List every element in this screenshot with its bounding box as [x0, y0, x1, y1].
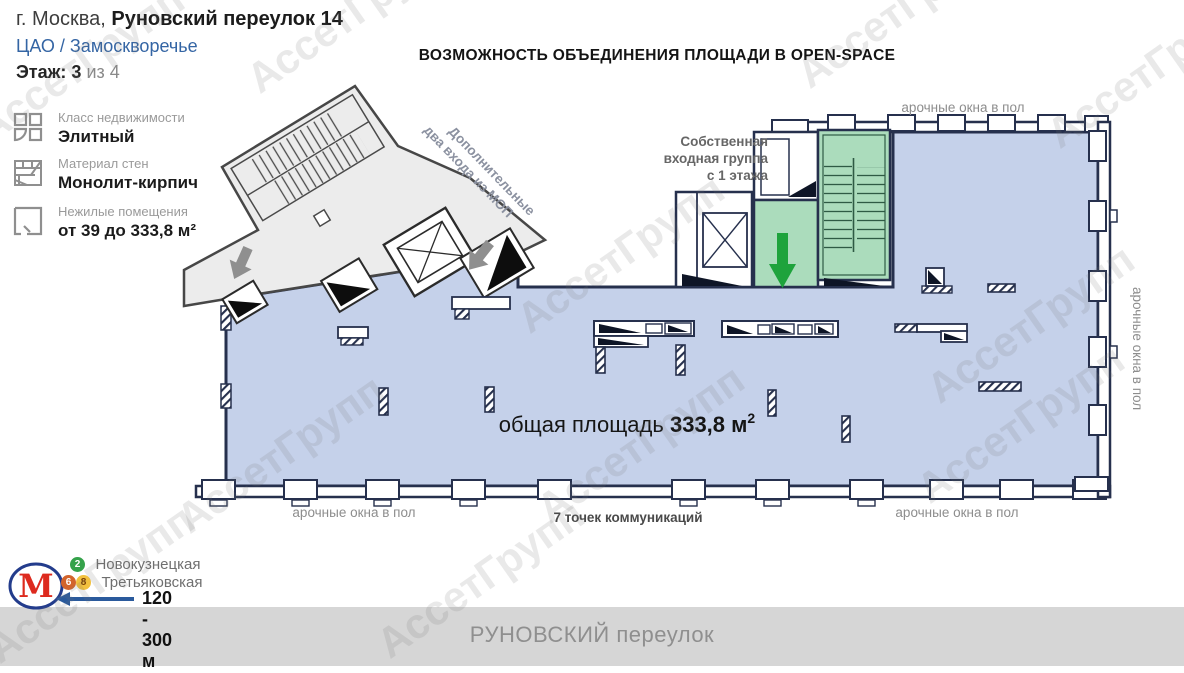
floor-current: 3 [71, 62, 81, 82]
city-label: г. Москва, [16, 8, 106, 30]
property-label: Материал стен [58, 156, 220, 171]
distance-arrow-icon [56, 592, 136, 611]
address-label: Руновский переулок 14 [111, 8, 342, 30]
address-line: г. Москва, Руновский переулок 14 [16, 8, 343, 31]
metro-station: 2 Новокузнецкая [70, 556, 200, 574]
property-label: Нежилые помещения [58, 204, 220, 219]
floor-total: из 4 [86, 62, 119, 82]
floor-line: Этаж: 3 из 4 [16, 62, 343, 83]
green-staircase [818, 130, 890, 286]
property-value: Монолит-кирпич [58, 173, 220, 193]
metro-line-badge: 8 [76, 575, 91, 590]
windows-label-top: арочные окна в пол [901, 100, 1024, 115]
property-walls: Материал стен Монолит-кирпич [0, 156, 220, 193]
metro-line-badge: 2 [70, 557, 85, 572]
svg-text:с 1 этажа: с 1 этажа [707, 168, 769, 183]
metro-station: 68 Третьяковская [61, 574, 203, 592]
metro-line-badge: 6 [61, 575, 76, 590]
plan-headline: ВОЗМОЖНОСТЬ ОБЪЕДИНЕНИЯ ПЛОЩАДИ В OPEN-S… [419, 47, 895, 64]
property-label: Класс недвижимости [58, 110, 220, 125]
windows-label-right: арочные окна в пол [1130, 287, 1145, 410]
communications-label: 7 точек коммуникаций [553, 510, 702, 525]
svg-text:входная группа: входная группа [664, 151, 769, 166]
windows-label-bottom-right: арочные окна в пол [895, 505, 1018, 520]
property-value: от 39 до 333,8 м² [58, 221, 220, 241]
property-class: Класс недвижимости Элитный [0, 110, 220, 147]
metro-station-name: Новокузнецкая [95, 556, 200, 573]
svg-text:арочные окна в пол: арочные окна в пол [1130, 287, 1145, 410]
property-class-icon [13, 112, 43, 147]
district-label: ЦАО / Замоскворечье [16, 36, 343, 57]
entrance-group-label: Собственная входная группа с 1 этажа [664, 134, 769, 183]
windows-label-bottom-left: арочные окна в пол [292, 505, 415, 520]
street-bar: РУНОВСКИЙ переулок [0, 607, 1184, 666]
premises-area-icon [13, 206, 43, 241]
total-area-label: общая площадь 333,8 м2 [499, 410, 756, 437]
property-value: Элитный [58, 127, 220, 147]
walls-material-icon [13, 158, 43, 193]
listing-page: { "header": { "city": "г. Москва,", "add… [0, 0, 1184, 666]
property-premises: Нежилые помещения от 39 до 333,8 м² [0, 204, 220, 241]
street-name: РУНОВСКИЙ переулок [0, 622, 1184, 648]
elevator-block [676, 192, 752, 287]
svg-text:М: М [18, 567, 53, 605]
floor-label: Этаж: [16, 62, 66, 82]
svg-text:Собственная: Собственная [680, 134, 768, 149]
metro-distance: 120 - 300 м [142, 588, 172, 672]
header: г. Москва, Руновский переулок 14 ЦАО / З… [16, 8, 343, 83]
